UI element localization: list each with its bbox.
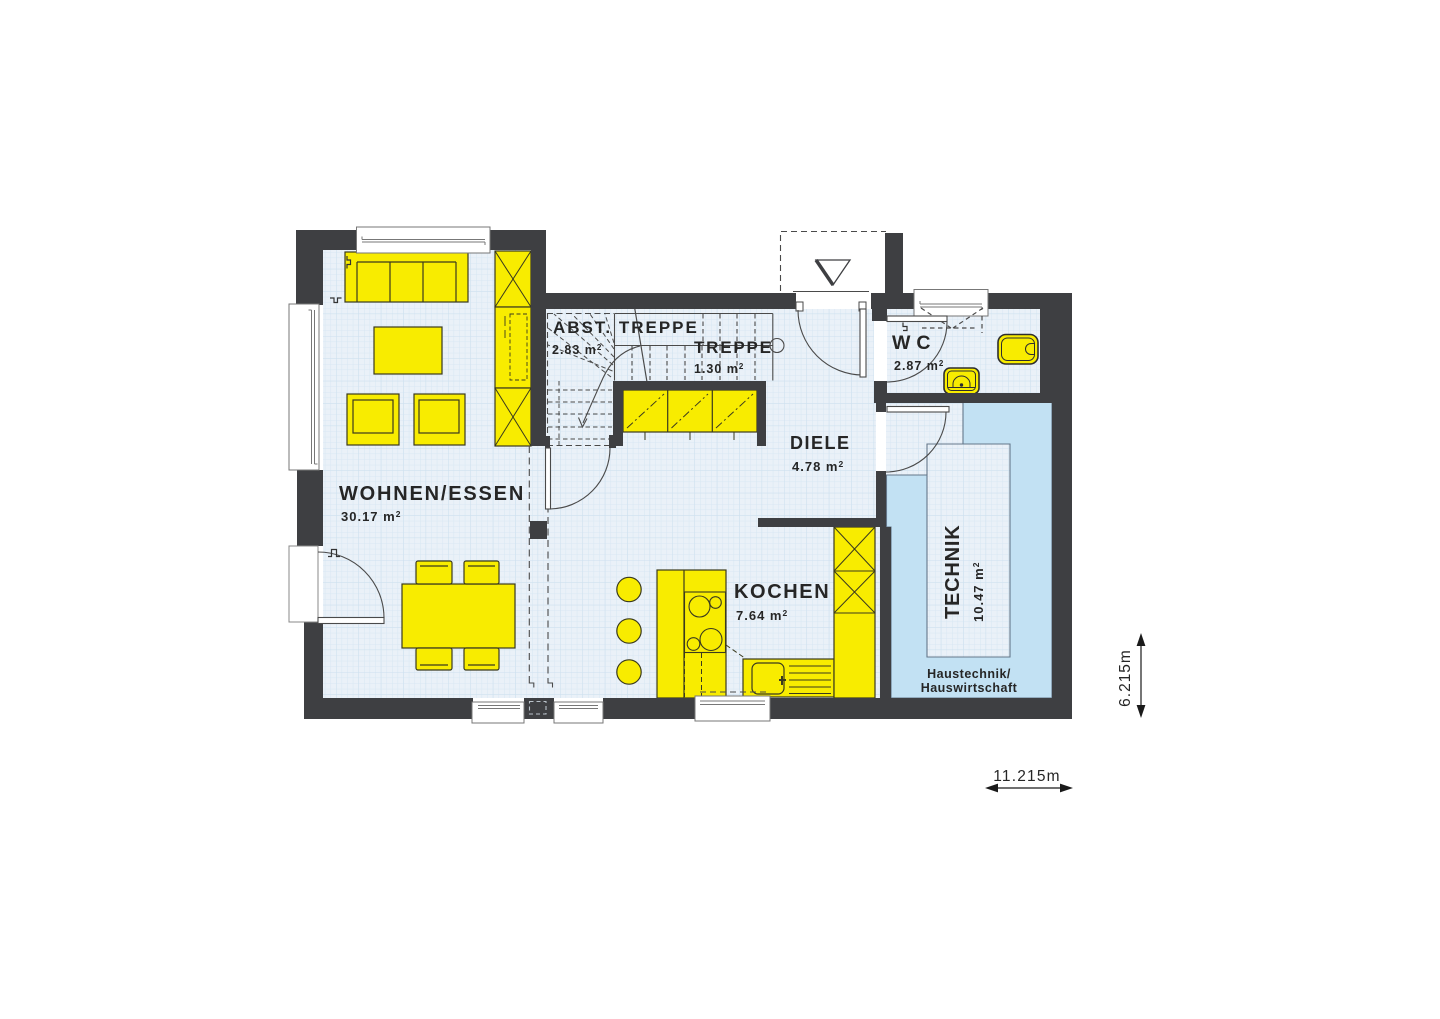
svg-text:7.64 m2: 7.64 m2 <box>736 608 788 623</box>
svg-text:ABST. TREPPE: ABST. TREPPE <box>553 318 699 337</box>
svg-text:WOHNEN/ESSEN: WOHNEN/ESSEN <box>339 483 525 505</box>
svg-text:10.47 m2: 10.47 m2 <box>971 562 986 622</box>
svg-text:Haustechnik/: Haustechnik/ <box>927 667 1011 681</box>
svg-text:11.215m: 11.215m <box>993 768 1061 785</box>
svg-text:1.30 m2: 1.30 m2 <box>694 362 744 376</box>
svg-text:KOCHEN: KOCHEN <box>734 581 830 603</box>
svg-text:WC: WC <box>892 332 937 354</box>
svg-text:4.78 m2: 4.78 m2 <box>792 459 844 474</box>
svg-text:Hauswirtschaft: Hauswirtschaft <box>921 681 1018 695</box>
svg-text:2.83 m2: 2.83 m2 <box>552 343 602 357</box>
svg-text:TECHNIK: TECHNIK <box>942 525 964 620</box>
svg-text:30.17 m2: 30.17 m2 <box>341 509 401 524</box>
svg-text:6.215m: 6.215m <box>1117 649 1134 707</box>
svg-text:TREPPE: TREPPE <box>694 338 773 357</box>
svg-text:2.87 m2: 2.87 m2 <box>894 359 944 373</box>
svg-text:DIELE: DIELE <box>790 433 851 453</box>
